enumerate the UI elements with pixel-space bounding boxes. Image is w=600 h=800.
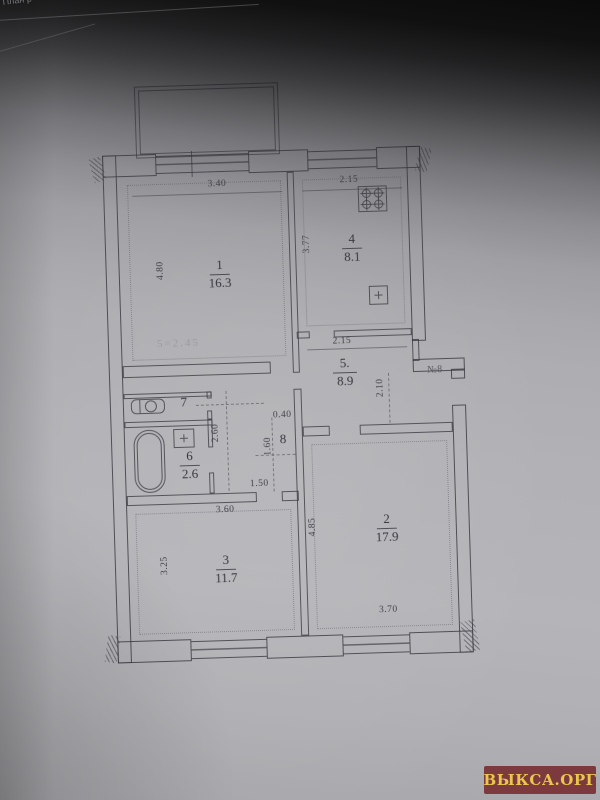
dim-corridor-height: 2.60 [211, 413, 222, 453]
room-6-label: 6 2.6 [167, 448, 212, 483]
entrance-apartment-number: №8 [415, 365, 455, 376]
right-wall-upper [406, 146, 426, 341]
dim-hall-height: 2.10 [376, 368, 387, 408]
room-7-label: 7 [174, 395, 194, 411]
toilet-right-wall-a [206, 391, 211, 398]
dim-corridor-width: 1.50 [229, 479, 289, 490]
right-wall-connector [412, 339, 420, 361]
photo-of-floor-plan: План р [0, 0, 600, 800]
room-8-label: 8 [275, 432, 291, 447]
room-5-number: 5. [333, 356, 357, 374]
wall-room1-room4 [287, 172, 300, 373]
bathtub-icon [133, 429, 167, 494]
closet-measure-line-h [255, 454, 295, 456]
paper-edge-line [0, 4, 259, 21]
room-4-label: 4 8.1 [327, 231, 378, 266]
dim-room3-width: 3.60 [195, 505, 255, 516]
ghost-note: 5=2.45 [157, 337, 200, 350]
hall-measure-line [388, 373, 391, 423]
room-5-area: 8.9 [320, 372, 371, 390]
room-6-area: 2.6 [168, 465, 213, 483]
room-1-area: 16.3 [195, 274, 246, 292]
bottom-wall-segment [266, 634, 344, 658]
room2-top-wall-a [303, 426, 330, 437]
toilet-bath-wall [124, 419, 212, 428]
window-room4 [308, 149, 377, 169]
corridor-measure-line [225, 391, 229, 491]
washbasin-icon [173, 428, 196, 449]
room2-top-wall-b [360, 422, 453, 435]
room-7-number: 7 [180, 395, 187, 410]
dim-room2-width: 3.70 [358, 605, 418, 616]
room1-bottom-wall [123, 362, 271, 379]
room-2-area: 17.9 [362, 528, 413, 546]
dim-room1-width: 3.40 [187, 179, 247, 190]
dim-room4-width: 2.15 [319, 175, 379, 186]
bottom-wall-segment [117, 639, 192, 663]
room-5-label: 5. 8.9 [319, 355, 370, 390]
room-1-number: 1 [209, 258, 230, 276]
room-1-label: 1 16.3 [194, 257, 245, 292]
balcony-inner-line [138, 86, 276, 154]
room-6-number: 6 [179, 449, 200, 467]
room3-top-wall-a [127, 492, 257, 506]
room-2-label: 2 17.9 [361, 511, 412, 546]
room-4-area: 8.1 [327, 248, 378, 266]
toilet-label-pointer [196, 403, 264, 406]
room-4-number: 4 [341, 232, 362, 250]
watermark-text: ВЫКСА.ОРГ [484, 771, 597, 789]
dim-room4-height: 3.77 [303, 224, 314, 264]
page-header-partial: План р [2, 0, 32, 7]
dim-room4-bottom: 2.15 [312, 336, 372, 347]
room-3-number: 3 [215, 553, 236, 571]
dim-closet-height: 1.60 [264, 426, 275, 466]
paper-edge-line-2 [0, 24, 95, 54]
room-3-label: 3 11.7 [201, 552, 252, 587]
toilet-icon [130, 396, 167, 417]
room-8-number: 8 [280, 432, 287, 447]
dim-closet-width: 0.40 [252, 410, 312, 421]
window-room2 [343, 634, 410, 654]
room-3-area: 11.7 [201, 569, 252, 587]
top-wall-segment [248, 149, 309, 173]
right-wall-lower [452, 404, 474, 652]
kitchen-sink-icon [368, 285, 389, 306]
watermark-badge: ВЫКСА.ОРГ [484, 766, 596, 794]
floor-plan: 1 16.3 4 8.1 5. 8.9 6 2.6 7 8 3 11.7 2 1… [94, 74, 482, 675]
dim-room2-height: 4.85 [308, 507, 319, 547]
room-2-number: 2 [376, 512, 397, 530]
dim-room3-height: 3.25 [161, 546, 172, 586]
stove-icon [357, 185, 388, 213]
window-room3 [191, 639, 267, 659]
dim-room1-height: 4.80 [156, 251, 167, 291]
room4-bottom-wall-a [297, 331, 310, 338]
window-room1 [156, 153, 249, 174]
